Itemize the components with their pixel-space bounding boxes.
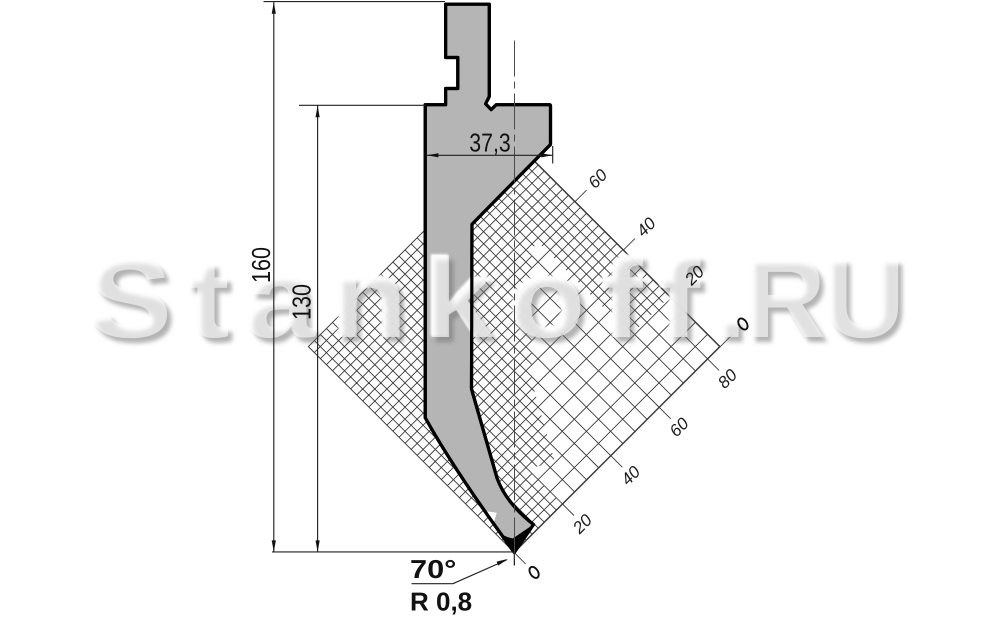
svg-text:130: 130 [287,284,317,320]
svg-text:R 0,8: R 0,8 [410,587,472,617]
svg-text:20: 20 [680,262,708,290]
svg-text:40: 40 [617,462,644,489]
svg-text:70°: 70° [410,554,456,584]
svg-text:60: 60 [584,165,611,192]
svg-text:80: 80 [714,365,741,392]
svg-text:60: 60 [666,414,693,441]
svg-text:20: 20 [568,510,596,538]
svg-text:37,3: 37,3 [469,128,510,158]
svg-text:40: 40 [633,213,660,240]
svg-text:160: 160 [246,247,276,283]
